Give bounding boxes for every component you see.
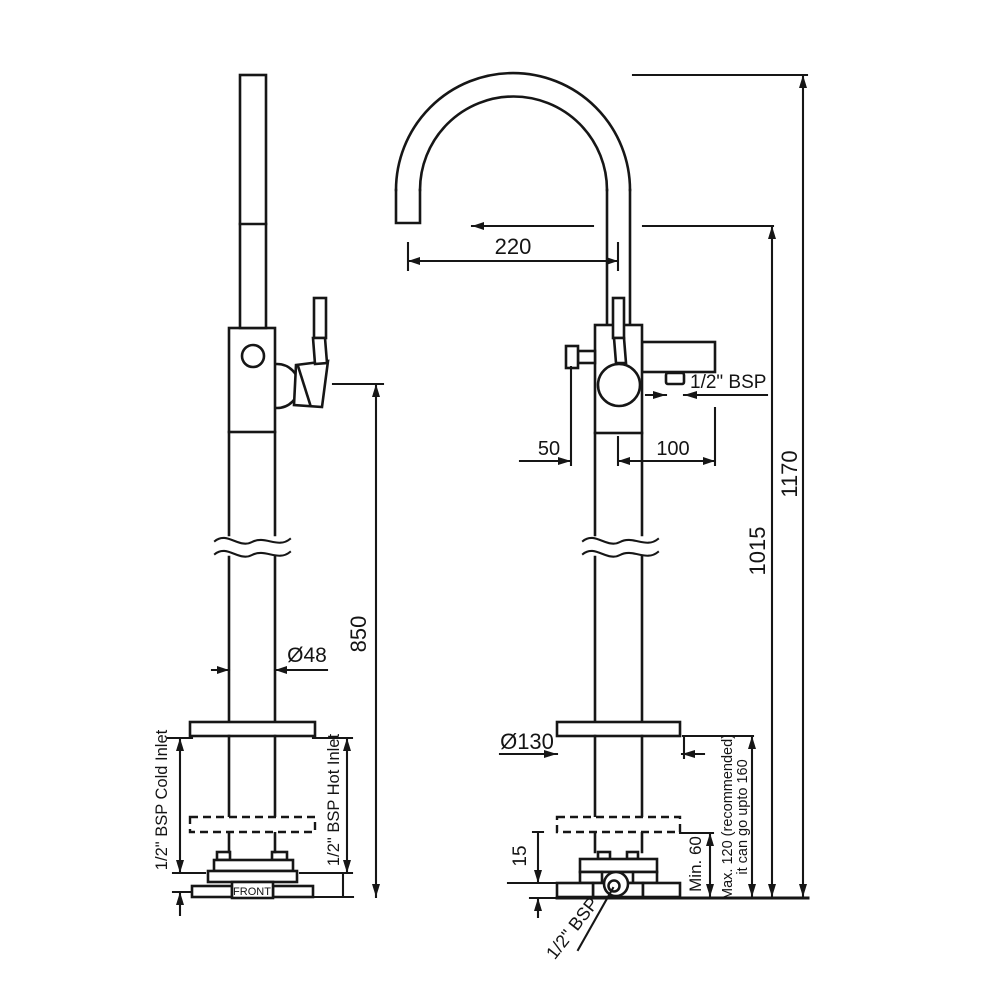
hot-inlet-label: 1/2" BSP Hot Inlet: [325, 734, 343, 867]
front-view-hose-fitting: [666, 373, 684, 384]
break-squiggle: [215, 538, 290, 544]
front-view-cover-plate: [557, 722, 680, 736]
dim-220-label: 220: [495, 234, 532, 259]
front-view-base: [557, 852, 680, 897]
min-60-label: Min. 60: [686, 836, 705, 892]
inlet-thread-label: 1/2" BSP: [542, 894, 602, 963]
front-view-diverter-knob: [566, 346, 595, 368]
front-view-spout: [396, 73, 630, 325]
front-view-column: [583, 433, 658, 722]
dim-850-label: 850: [346, 616, 371, 653]
drawing-canvas: 220 850 Ø48 1/2" BSP Cold Inlet 1/2" BSP…: [0, 0, 1000, 1000]
side-view-body: [229, 328, 275, 432]
dim-1170-label: 1170: [777, 450, 802, 497]
side-view-top-pipe: [240, 75, 266, 328]
dim-50-label: 50: [538, 438, 560, 460]
break-squiggle: [215, 551, 290, 557]
front-view-shower-bracket: [642, 342, 715, 372]
front-view-lever: [613, 298, 626, 363]
side-view-column: [215, 432, 290, 722]
max-120-label-line2: it can go upto 160: [735, 759, 751, 874]
arrowheads: [176, 75, 807, 911]
dim-15-label: 15: [510, 845, 531, 866]
base-inlet-port-hole: [609, 881, 620, 892]
side-view: [190, 75, 328, 898]
break-squiggle: [583, 538, 658, 544]
cold-inlet-label: 1/2" BSP Cold Inlet: [153, 729, 171, 870]
dim-base-diameter-label: Ø130: [500, 729, 554, 754]
outlet-thread-label: 1/2" BSP: [690, 372, 766, 393]
front-label: FRONT: [233, 886, 271, 898]
side-view-lever-stick: [314, 298, 326, 338]
technical-drawing: 220 850 Ø48 1/2" BSP Cold Inlet 1/2" BSP…: [0, 0, 1000, 1000]
max-120-label-line1: Max. 120 (recommended): [720, 734, 736, 900]
dim-1015-label: 1015: [745, 527, 770, 576]
dim-diameter-48-label: Ø48: [287, 644, 327, 667]
side-view-adjustable-plate: [190, 817, 315, 832]
side-view-cover-plate: [190, 722, 315, 736]
front-view-handle-hub: [598, 364, 640, 406]
front-view-adjustable-plate: [557, 817, 680, 832]
front-view-inlet-pipes: [595, 736, 642, 852]
dim-100-label: 100: [656, 438, 689, 460]
side-view-inlet-pipes: [229, 736, 275, 852]
